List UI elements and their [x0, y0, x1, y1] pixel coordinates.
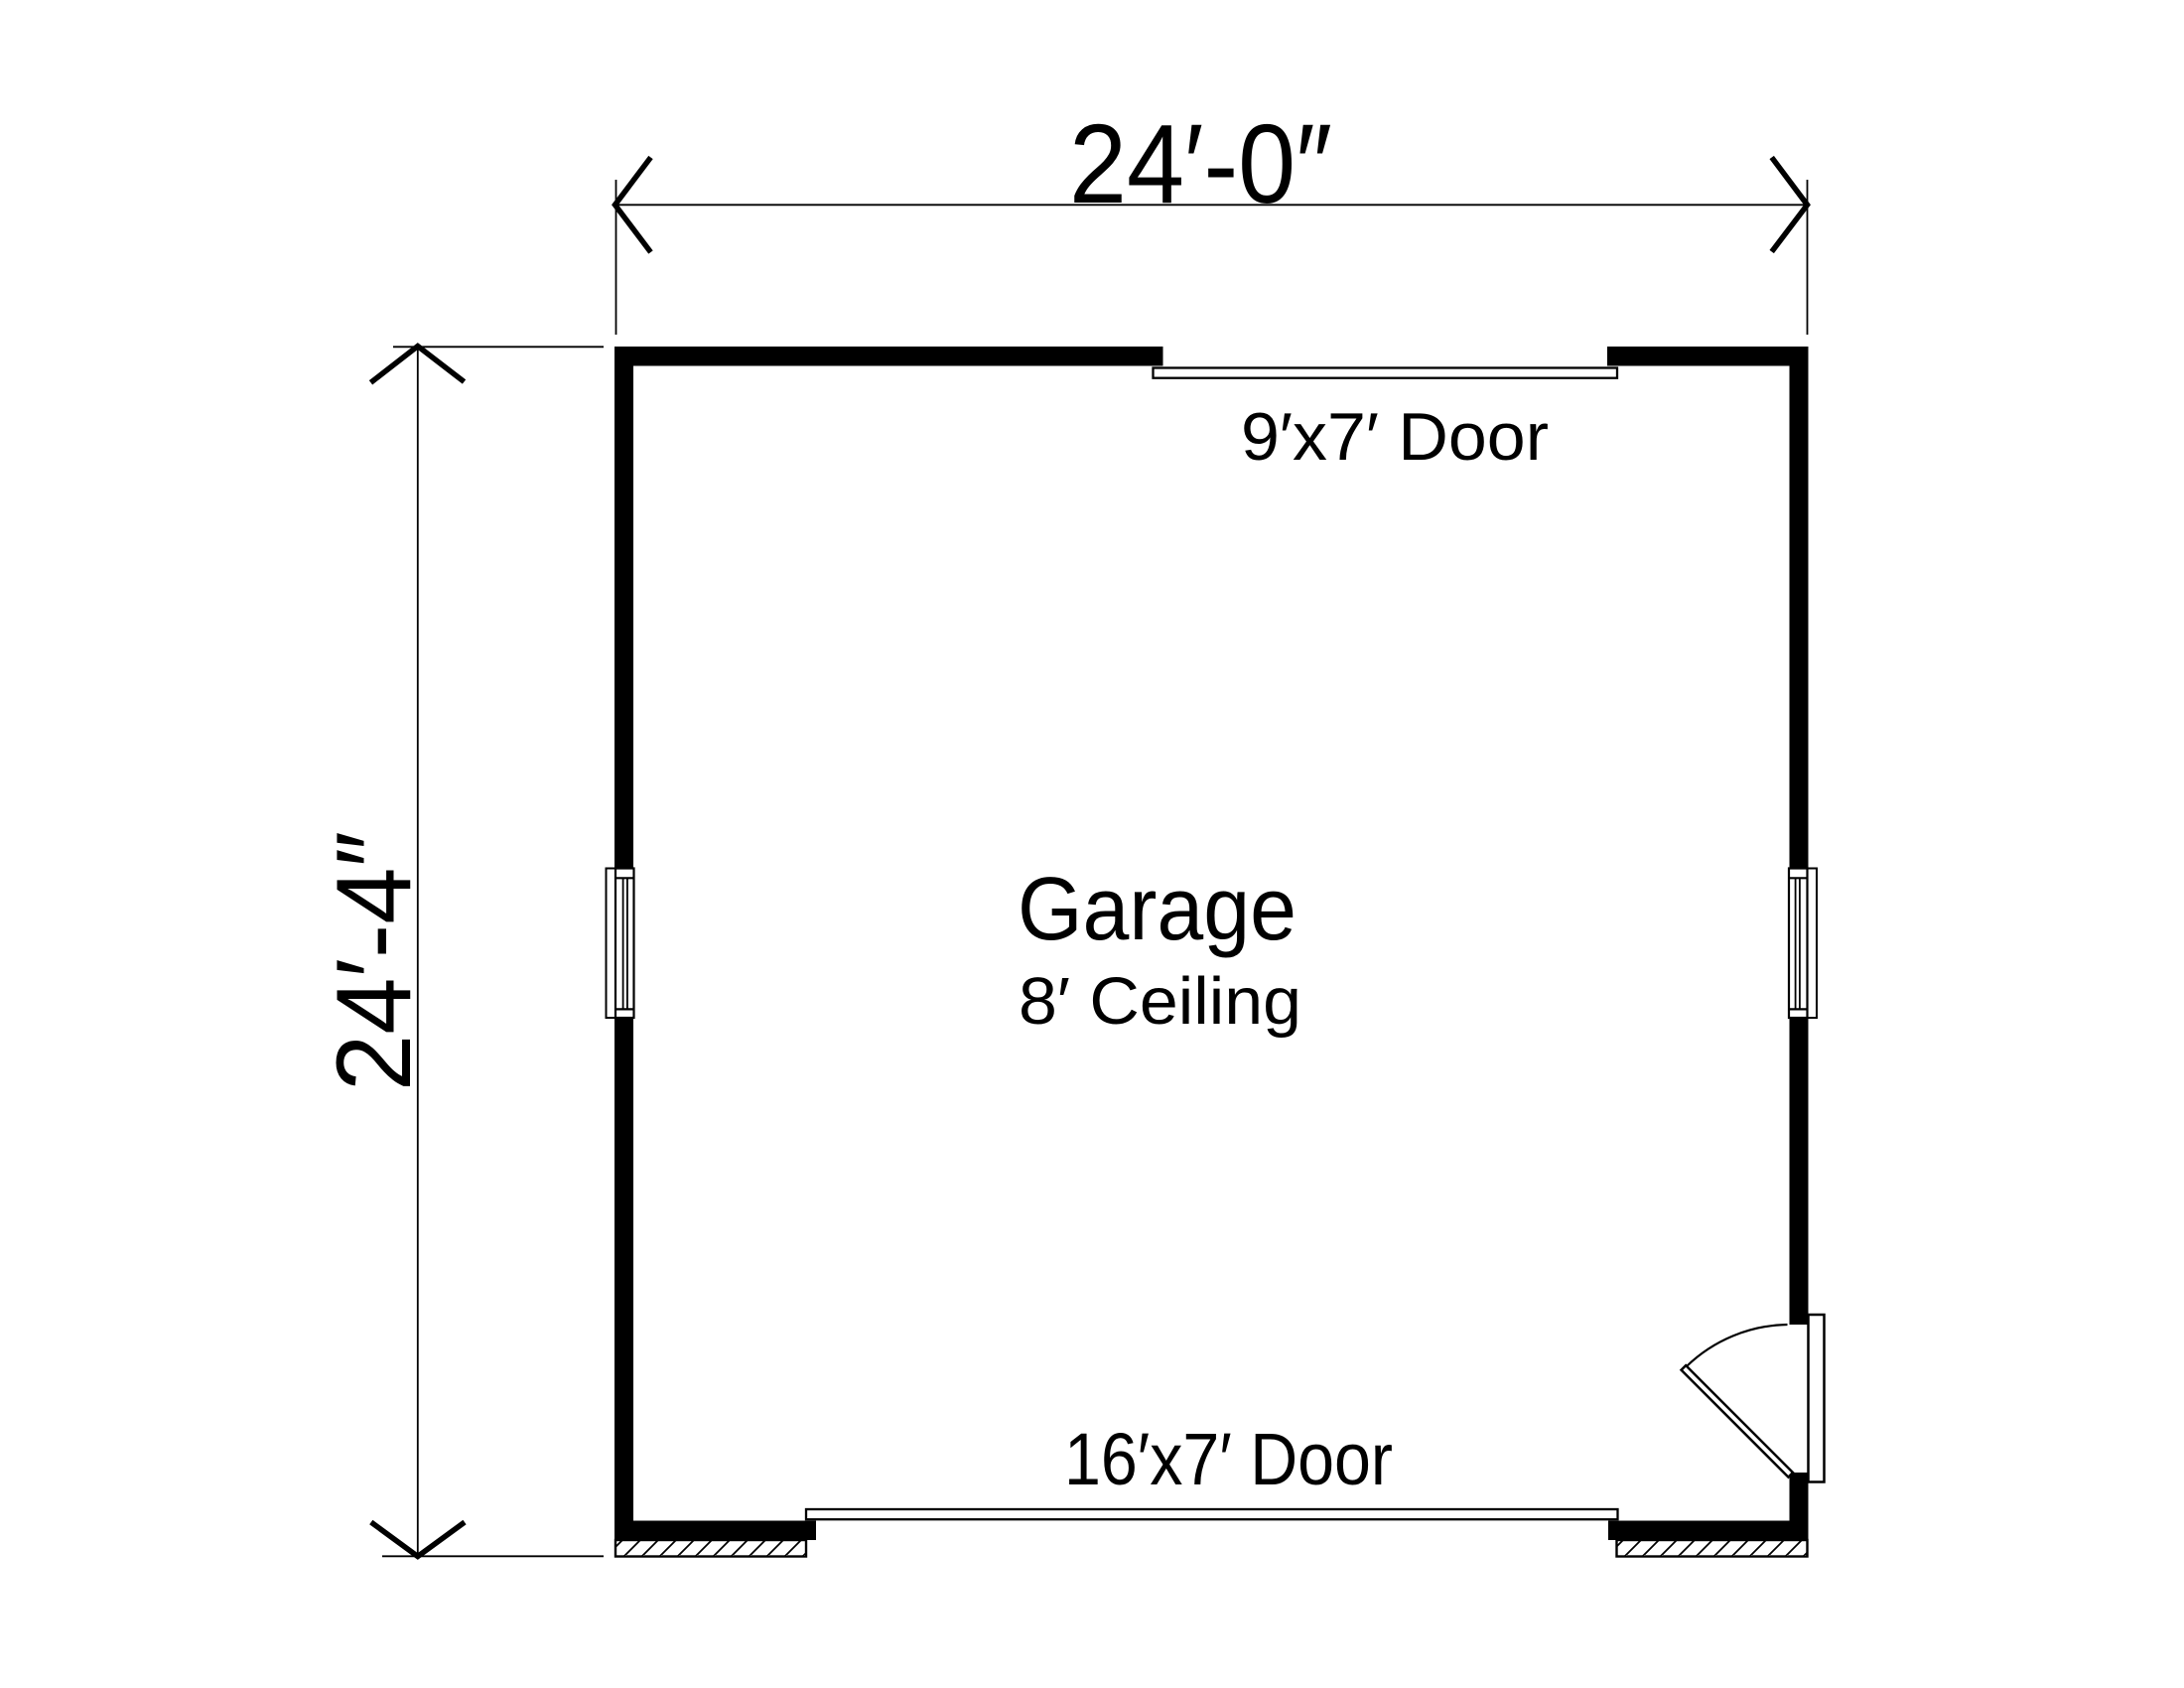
svg-text:16′x7′ Door: 16′x7′ Door: [1064, 1418, 1393, 1500]
svg-text:24′-4″: 24′-4″: [314, 831, 433, 1091]
svg-text:Garage: Garage: [1018, 860, 1297, 959]
svg-text:8′ Ceiling: 8′ Ceiling: [1019, 964, 1301, 1039]
svg-text:24′-0″: 24′-0″: [1069, 101, 1332, 226]
svg-text:9′x7′ Door: 9′x7′ Door: [1241, 399, 1549, 475]
